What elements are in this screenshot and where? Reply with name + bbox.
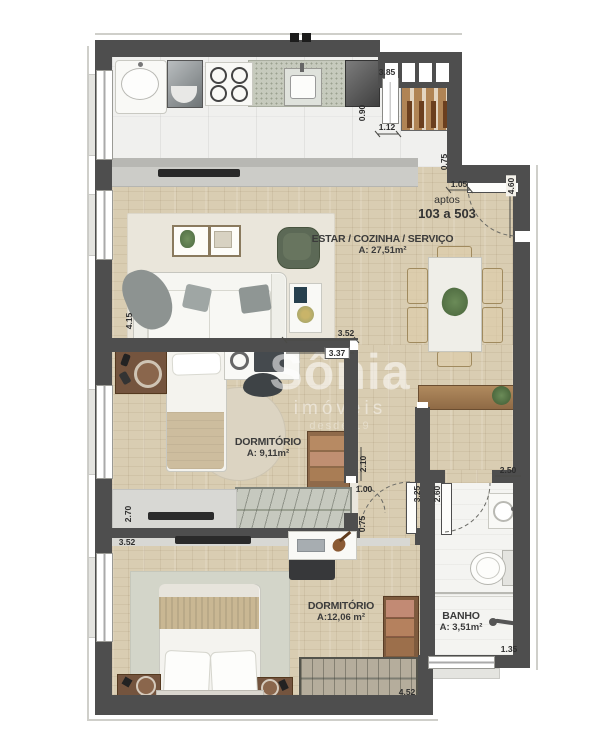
room-label-bedroom1: DORMITÓRIO A: 9,11m²: [218, 436, 318, 459]
dimension-label: 1.12: [379, 122, 396, 132]
room-label-bedroom2: DORMITÓRIO A:12,06 m²: [291, 600, 391, 623]
dimension-label: 3.37: [325, 347, 350, 359]
floor-plan: ESTAR / COZINHA / SERVIÇO A: 27,51m² DOR…: [0, 0, 603, 750]
dimension-label: 3.52: [119, 537, 136, 547]
dimension-label: 0.75: [439, 154, 449, 171]
door-swings-and-dimension-lines: [0, 0, 603, 750]
room-label-living: ESTAR / COZINHA / SERVIÇO A: 27,51m²: [305, 233, 460, 256]
dimension-label: 4.52: [399, 687, 416, 697]
dimension-label: 4.60: [506, 176, 516, 197]
dimension-label: 3.52: [338, 328, 355, 338]
unit-label: aptos 103 a 503: [404, 194, 490, 221]
dimension-label: 1.35: [501, 644, 518, 654]
room-label-bathroom: BANHO A: 3,51m²: [421, 610, 501, 633]
dimension-label: 2.10: [358, 456, 368, 473]
dimension-label: 1.00: [356, 484, 373, 494]
dimension-label: 2.70: [123, 506, 133, 523]
dimension-label: 3.85: [379, 67, 396, 77]
dimension-label: 2.60: [432, 486, 442, 503]
dimension-label: 4.15: [124, 313, 134, 330]
dimension-label: 1.05: [451, 179, 468, 189]
dimension-label: 0.90: [357, 105, 367, 122]
dimension-label: 3.25: [412, 486, 422, 503]
dimension-label: 2.50: [500, 465, 517, 475]
dimension-label: 0.75: [357, 516, 367, 533]
